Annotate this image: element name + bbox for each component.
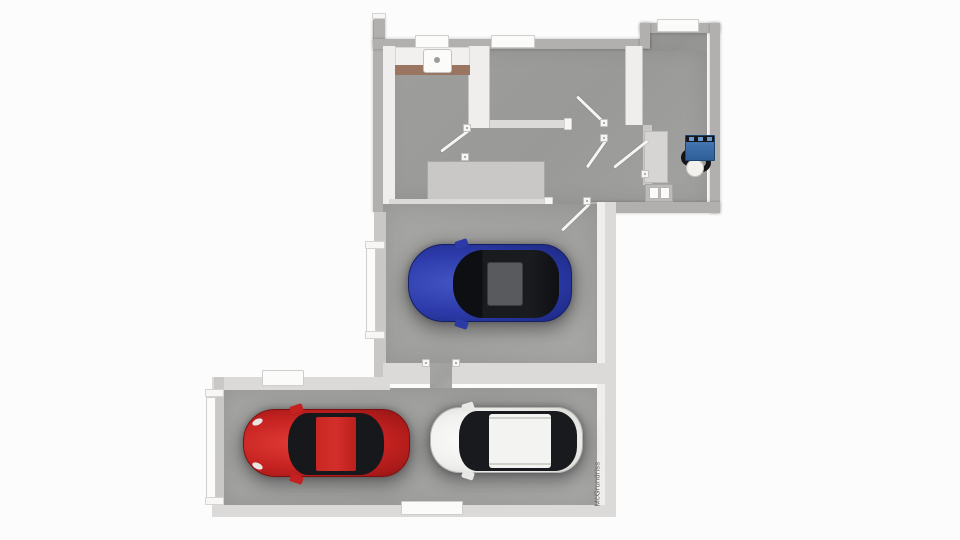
window-top-2 xyxy=(491,35,535,48)
wall-right-exterior xyxy=(710,23,720,213)
double-garage-bottom-window xyxy=(401,501,463,515)
door-post-center-room xyxy=(600,119,608,127)
double-garage-left-window-cap-bottom xyxy=(205,497,224,505)
wall-hall-bottom-segment xyxy=(490,120,567,128)
red-car-roof xyxy=(316,417,356,471)
boiler-room-floor xyxy=(650,31,707,51)
door-post-storage-room xyxy=(463,124,471,132)
boiler-valve-3 xyxy=(707,137,712,141)
passage-post-left xyxy=(422,359,430,367)
garage-passage-opening xyxy=(430,363,452,390)
wall-connector-vertical xyxy=(640,23,650,48)
boiler-valve-2 xyxy=(698,137,703,141)
red-car-headlight-top xyxy=(251,417,264,427)
double-garage-left-window xyxy=(206,397,216,499)
red-car xyxy=(243,409,410,477)
blue-car-sunroof xyxy=(487,262,523,306)
boiler-valve-1 xyxy=(689,137,694,141)
floor-plan: McGrundriss xyxy=(0,0,960,540)
meter-box-fuse-1 xyxy=(649,187,659,199)
single-garage-left-window xyxy=(366,248,376,333)
door-post-garage-entry xyxy=(583,197,591,205)
white-car-roof xyxy=(489,414,551,468)
double-garage-top-window xyxy=(262,370,304,386)
wall-storage-hall xyxy=(468,46,490,128)
wall-hall-boilerroom-upper xyxy=(625,46,643,125)
stair-newel-post xyxy=(461,153,469,161)
boiler-unit xyxy=(685,135,715,161)
white-car-roof-rail-bottom xyxy=(489,463,551,465)
double-garage-left-window-cap-top xyxy=(205,389,224,397)
wall-left-stub-cap xyxy=(372,13,386,19)
passage-post-right xyxy=(452,359,460,367)
single-garage-left-window-cap-bottom xyxy=(365,331,385,339)
watermark-text: McGrundriss xyxy=(593,463,604,507)
water-tank xyxy=(686,159,704,177)
window-boiler-room xyxy=(657,19,699,32)
wall-inner-left-face xyxy=(383,46,395,204)
wall-hall-bottom-cap xyxy=(564,118,572,130)
single-garage-right-wall-outer xyxy=(605,202,616,517)
garage-divider-wall xyxy=(383,363,605,384)
staircase xyxy=(427,161,545,200)
blue-car xyxy=(408,244,572,322)
door-post-boiler-room xyxy=(641,170,649,178)
single-garage-left-window-cap-top xyxy=(365,241,385,249)
white-car xyxy=(430,407,583,473)
door-post-hall-left xyxy=(600,134,608,142)
meter-box-fuse-2 xyxy=(660,187,670,199)
sink-drain xyxy=(434,57,440,63)
white-car-roof-rail-top xyxy=(489,417,551,419)
